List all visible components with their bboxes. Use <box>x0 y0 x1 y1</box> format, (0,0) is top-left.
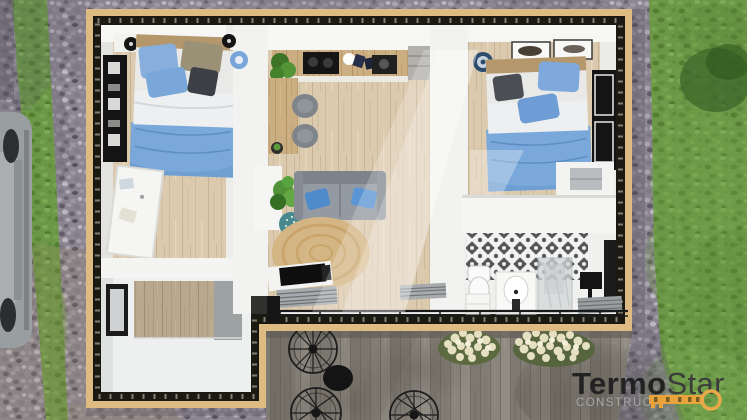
svg-text:CONSTRUCT: CONSTRUCT <box>576 397 661 409</box>
